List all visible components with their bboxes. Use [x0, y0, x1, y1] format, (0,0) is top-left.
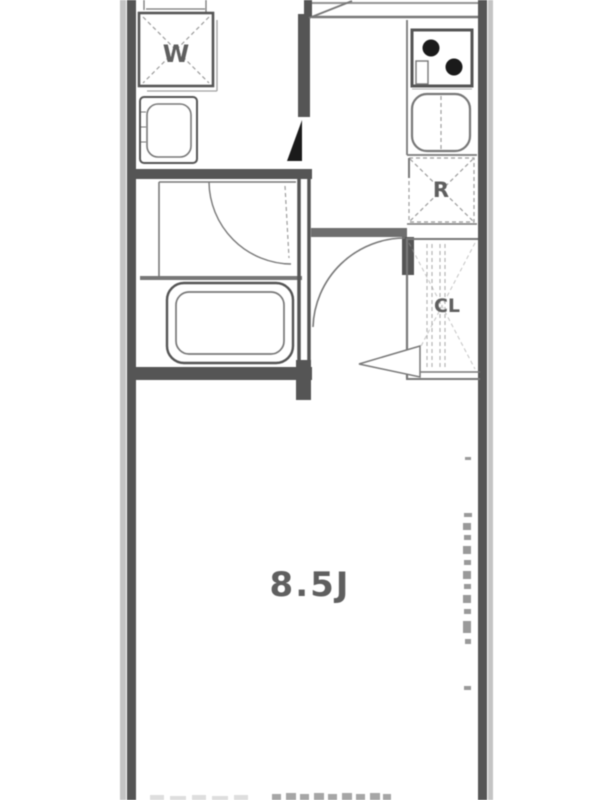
- washing-machine-label: W: [163, 40, 189, 68]
- stove-burner-icon: [446, 59, 463, 76]
- right-edge-strip: [488, 0, 493, 800]
- illegible-side-annotation: [463, 457, 472, 690]
- stove-grill: [416, 61, 428, 84]
- entry-door-arc: [313, 238, 405, 327]
- kitchen: R: [407, 20, 477, 224]
- illegible-bottom-annotation: [150, 793, 391, 800]
- cropped-top-lines: [144, 0, 206, 13]
- doorway-lintel: [311, 228, 407, 237]
- bathroom: [136, 182, 312, 380]
- entry-door-leaf: [359, 346, 420, 377]
- left-edge-strip: [120, 0, 126, 800]
- hall-wall: [296, 170, 311, 400]
- refrigerator-label: R: [433, 178, 449, 202]
- entrance-jamb: [304, 0, 312, 18]
- bathtub-inner: [176, 292, 284, 354]
- utility-room: W: [136, 0, 312, 179]
- room-size-label: 8.5J: [270, 565, 351, 605]
- stove-burner-icon: [423, 40, 440, 57]
- bathroom-door-leaf-dash: [285, 186, 289, 258]
- bathroom-bottom-wall: [136, 367, 312, 380]
- bathroom-door-arc: [209, 182, 291, 264]
- closet-label: CL: [434, 295, 460, 317]
- floorplan-drawing: W R: [0, 0, 600, 800]
- entrance-top: [309, 1, 478, 18]
- main-room: 8.5J: [270, 565, 351, 605]
- bathroom-top-wall: [136, 169, 312, 179]
- floorplan-canvas: W R: [0, 0, 600, 800]
- utility-door-marker: [287, 120, 302, 161]
- wall-right: [478, 0, 487, 800]
- hall-wall-lines: [299, 170, 309, 362]
- wall-left: [127, 0, 136, 800]
- washbasin-bowl: [147, 104, 191, 157]
- utility-right-wall: [298, 14, 310, 117]
- kitchen-sink: [412, 94, 470, 151]
